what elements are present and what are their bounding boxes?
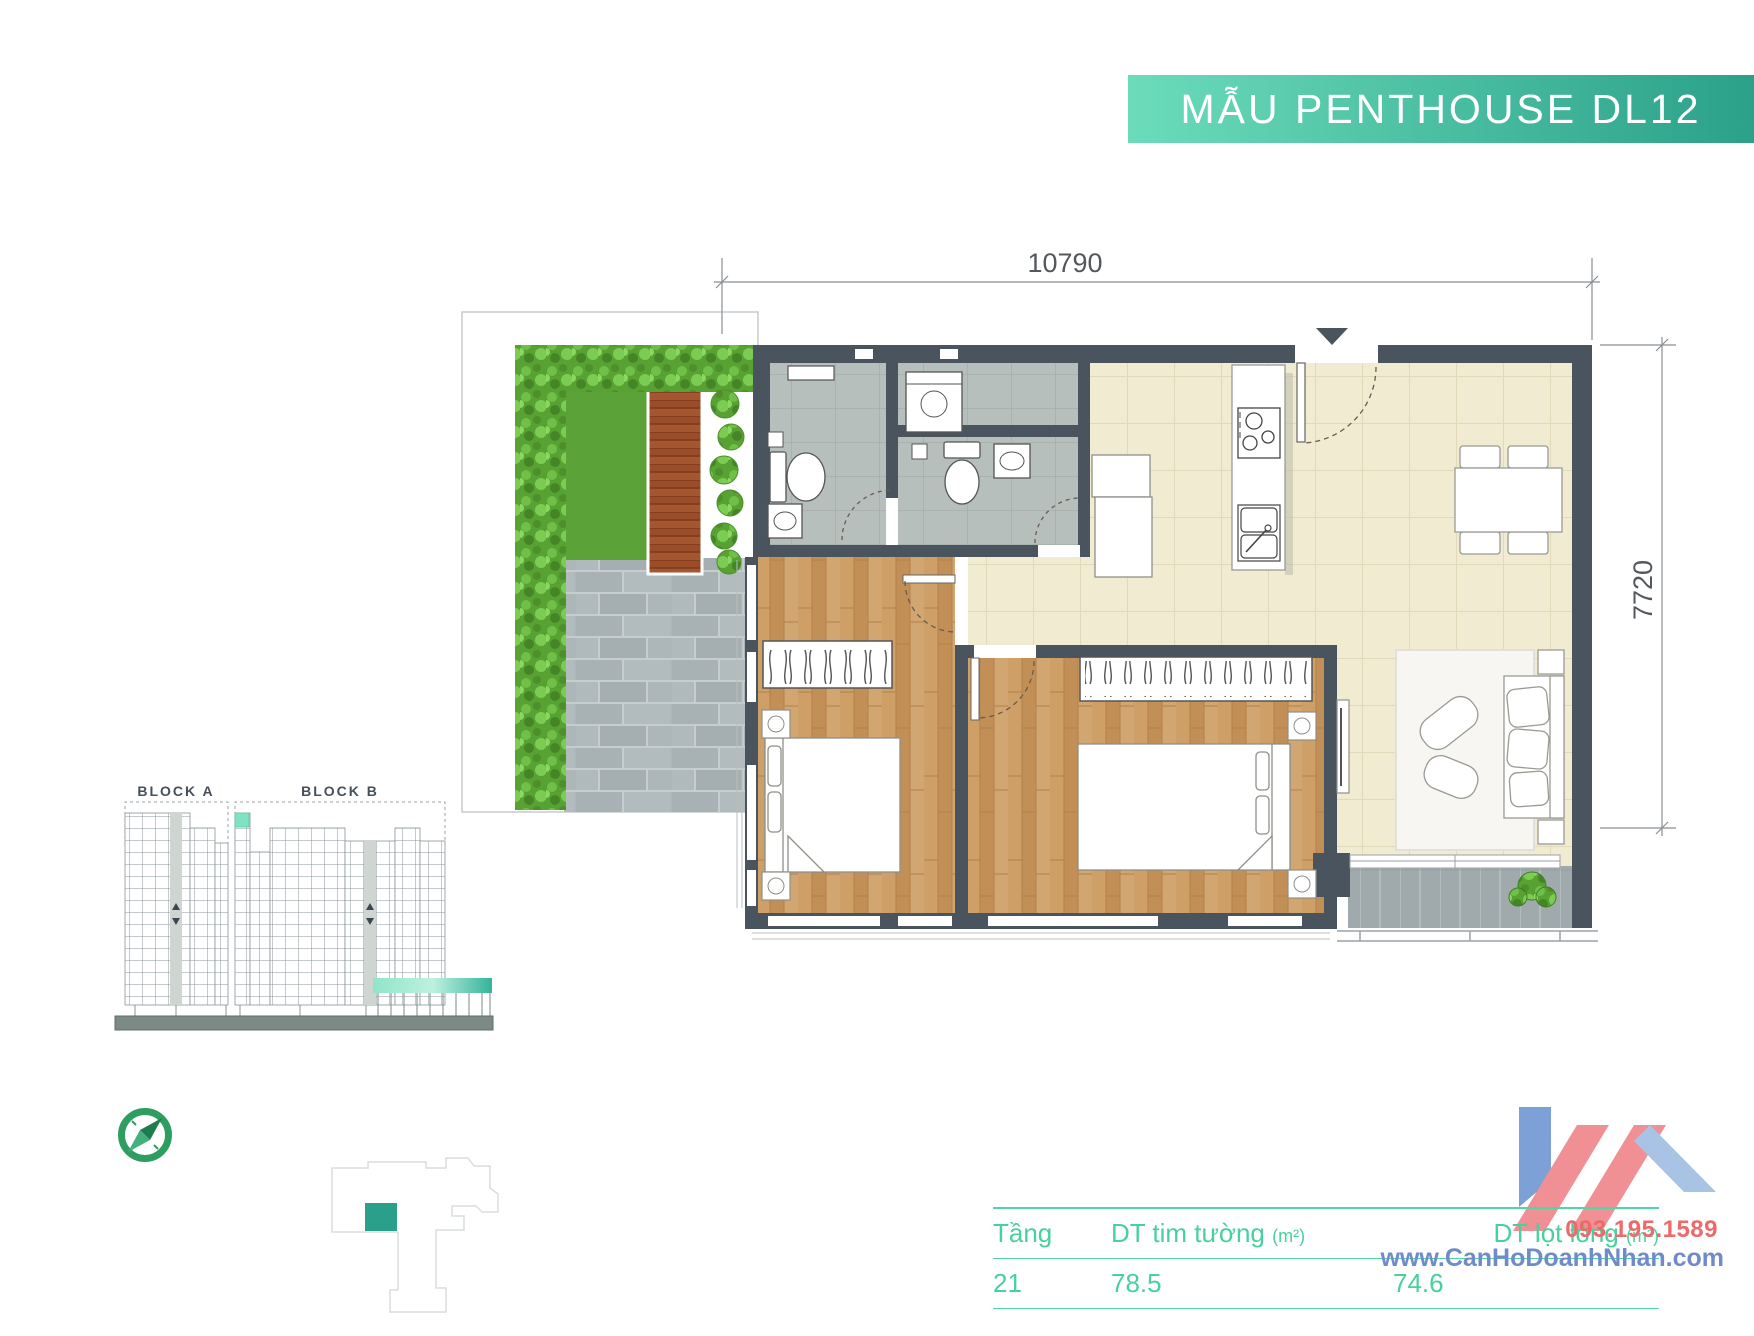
key-plan (332, 1158, 498, 1312)
chair (1460, 446, 1500, 468)
col-header-gross-area: DT tim tường (m²) (1111, 1218, 1393, 1249)
dimension-width-label: 10790 (1027, 248, 1102, 278)
podium-band (373, 978, 492, 993)
sink-icon (768, 504, 802, 538)
toilet-icon (770, 452, 825, 502)
watermark-phone: 093.195.1589 (1565, 1216, 1718, 1244)
dining-table (1455, 468, 1562, 532)
gross-area-value: 78.5 (1111, 1268, 1393, 1299)
dimension-height-label: 7720 (1628, 560, 1658, 620)
washer-icon (906, 372, 962, 432)
block-diagram: BLOCK A BLOCK B (115, 783, 493, 1030)
chair (1508, 532, 1548, 554)
tv-console (1337, 700, 1349, 793)
shower-drain-icon (768, 432, 783, 447)
sofa (1504, 650, 1564, 844)
hedge-left (515, 345, 566, 810)
bed (765, 738, 900, 872)
col-header-floor: Tầng (993, 1218, 1111, 1249)
entrance-marker-icon (1316, 328, 1348, 345)
shower-drain-icon (912, 444, 927, 459)
block-a-label: BLOCK A (137, 783, 214, 799)
ground-bar (115, 1016, 493, 1030)
paver-terrace (564, 558, 757, 812)
kitchen-island (1232, 365, 1293, 575)
title-banner: MẪU PENTHOUSE DL12 (1128, 75, 1754, 143)
roof-garden (462, 312, 758, 812)
wood-deck (648, 386, 702, 574)
wardrobe (763, 641, 892, 688)
dining-set (1455, 446, 1562, 554)
toilet-icon (944, 442, 980, 504)
table-rule-bottom (993, 1308, 1659, 1309)
floor-plan-canvas: 10790 7720 BLOCK A BLOCK B (0, 0, 1754, 1336)
dimension-top (714, 258, 1600, 340)
page-title: MẪU PENTHOUSE DL12 (1180, 86, 1701, 133)
fridge-cabinet (1092, 455, 1152, 577)
tower-a (125, 813, 228, 1005)
block-b-label: BLOCK B (301, 783, 379, 799)
wardrobe (1080, 657, 1312, 701)
sink-icon (994, 444, 1030, 478)
bath-shelf (788, 366, 834, 380)
chair (1460, 532, 1500, 554)
stove-icon (1238, 408, 1280, 458)
kitchen-sink-icon (1238, 505, 1280, 561)
laundry-nook (906, 372, 962, 432)
bed (1078, 744, 1290, 870)
lawn (564, 388, 650, 560)
tower-b (235, 813, 445, 1005)
floor-value: 21 (993, 1268, 1111, 1299)
unit-location-marker (365, 1203, 397, 1231)
highlighted-floor-cell (235, 813, 249, 827)
watermark-website: www.CanHoDoanhNhan.com (1380, 1244, 1724, 1273)
chair (1508, 446, 1548, 468)
compass-icon (122, 1112, 169, 1159)
